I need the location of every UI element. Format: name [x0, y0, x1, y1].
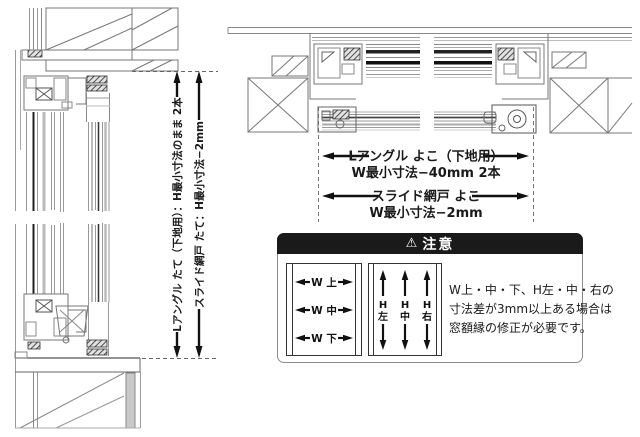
screen-rail: [318, 105, 536, 133]
caution-note-line1: W上・中・下、H左・中・右の: [449, 281, 579, 300]
dimension-l-angle-horizontal: Lアングル よこ（下地用） W最小寸法−40mm 2本: [322, 149, 529, 182]
caution-note: W上・中・下、H左・中・右の 寸法差が3mm以上ある場合は 窓額縁の修正が必要で…: [449, 281, 579, 338]
screen-rails: [89, 122, 110, 302]
right-roller-housing: [484, 105, 536, 133]
horizontal-section-drawing: [228, 28, 632, 134]
h-right-label-kanji: 右: [421, 310, 432, 323]
caution-panel: ⚠ 注意 W 上 W 中 W 下 H 左 H 中: [277, 233, 583, 363]
caution-header: ⚠ 注意: [277, 233, 583, 254]
vertical-dimensions: Lアングル たて（下地用）：H最小寸法のまま 2本 スライド網戸 たて：H最小寸…: [132, 71, 218, 359]
vertical-section-drawing: [15, 8, 178, 428]
technical-drawing-page: Lアングル たて（下地用）：H最小寸法のまま 2本 スライド網戸 たて：H最小寸…: [0, 0, 640, 433]
left-roller-housing: [318, 107, 356, 132]
dim-label-slide-screen-yoko: スライド網戸 よこ: [372, 189, 481, 205]
dim-label-l-angle-tate: Lアングル たて（下地用）：H最小寸法のまま 2本: [171, 97, 184, 332]
w-bottom-label: W 下: [311, 333, 337, 345]
window-track: [314, 44, 544, 84]
dim-label-slide-screen-tate: スライド網戸 たて：H最小寸法−2mm: [193, 121, 206, 308]
width-measure-diagram: W 上 W 中 W 下: [286, 263, 362, 356]
frame-rails: [27, 112, 64, 294]
dim-label-l-angle-yoko: Lアングル よこ（下地用）: [348, 149, 503, 165]
exterior-board: [228, 28, 632, 41]
warning-triangle-icon: ⚠: [406, 236, 418, 251]
head-frame: [22, 8, 178, 122]
h-right-label-h: H: [423, 300, 431, 311]
wall-lines: [16, 50, 21, 428]
h-middle-label-kanji: 中: [400, 310, 410, 323]
h-middle-label-h: H: [401, 300, 409, 311]
left-jamb: [314, 44, 362, 84]
sections-drawing: Lアングル たて（下地用）：H最小寸法のまま 2本 スライド網戸 たて：H最小寸…: [0, 0, 640, 433]
right-jamb: [496, 44, 544, 84]
caution-note-line3: 窓額縁の修正が必要です。: [449, 319, 579, 338]
sill-frame: [15, 294, 141, 428]
dim-value-l-angle-yoko: W最小寸法−40mm 2本: [352, 165, 501, 181]
caution-title: 注意: [422, 234, 454, 254]
height-measure-diagram: H 左 H 中 H 右: [368, 263, 442, 356]
h-left-label-h: H: [379, 300, 387, 311]
caution-note-line2: 寸法差が3mm以上ある場合は: [449, 300, 579, 319]
w-middle-label: W 中: [311, 304, 337, 317]
dim-value-slide-screen-yoko: W最小寸法−2mm: [369, 205, 482, 221]
h-left-label-kanji: 左: [377, 310, 388, 323]
w-top-label: W 上: [311, 276, 337, 289]
dimension-slide-screen-horizontal: スライド網戸 よこ W最小寸法−2mm: [322, 189, 529, 222]
dimension-l-angle-vertical: Lアングル たて（下地用）：H最小寸法のまま 2本: [171, 71, 184, 358]
dimension-slide-screen-vertical: スライド網戸 たて：H最小寸法−2mm: [193, 71, 206, 358]
